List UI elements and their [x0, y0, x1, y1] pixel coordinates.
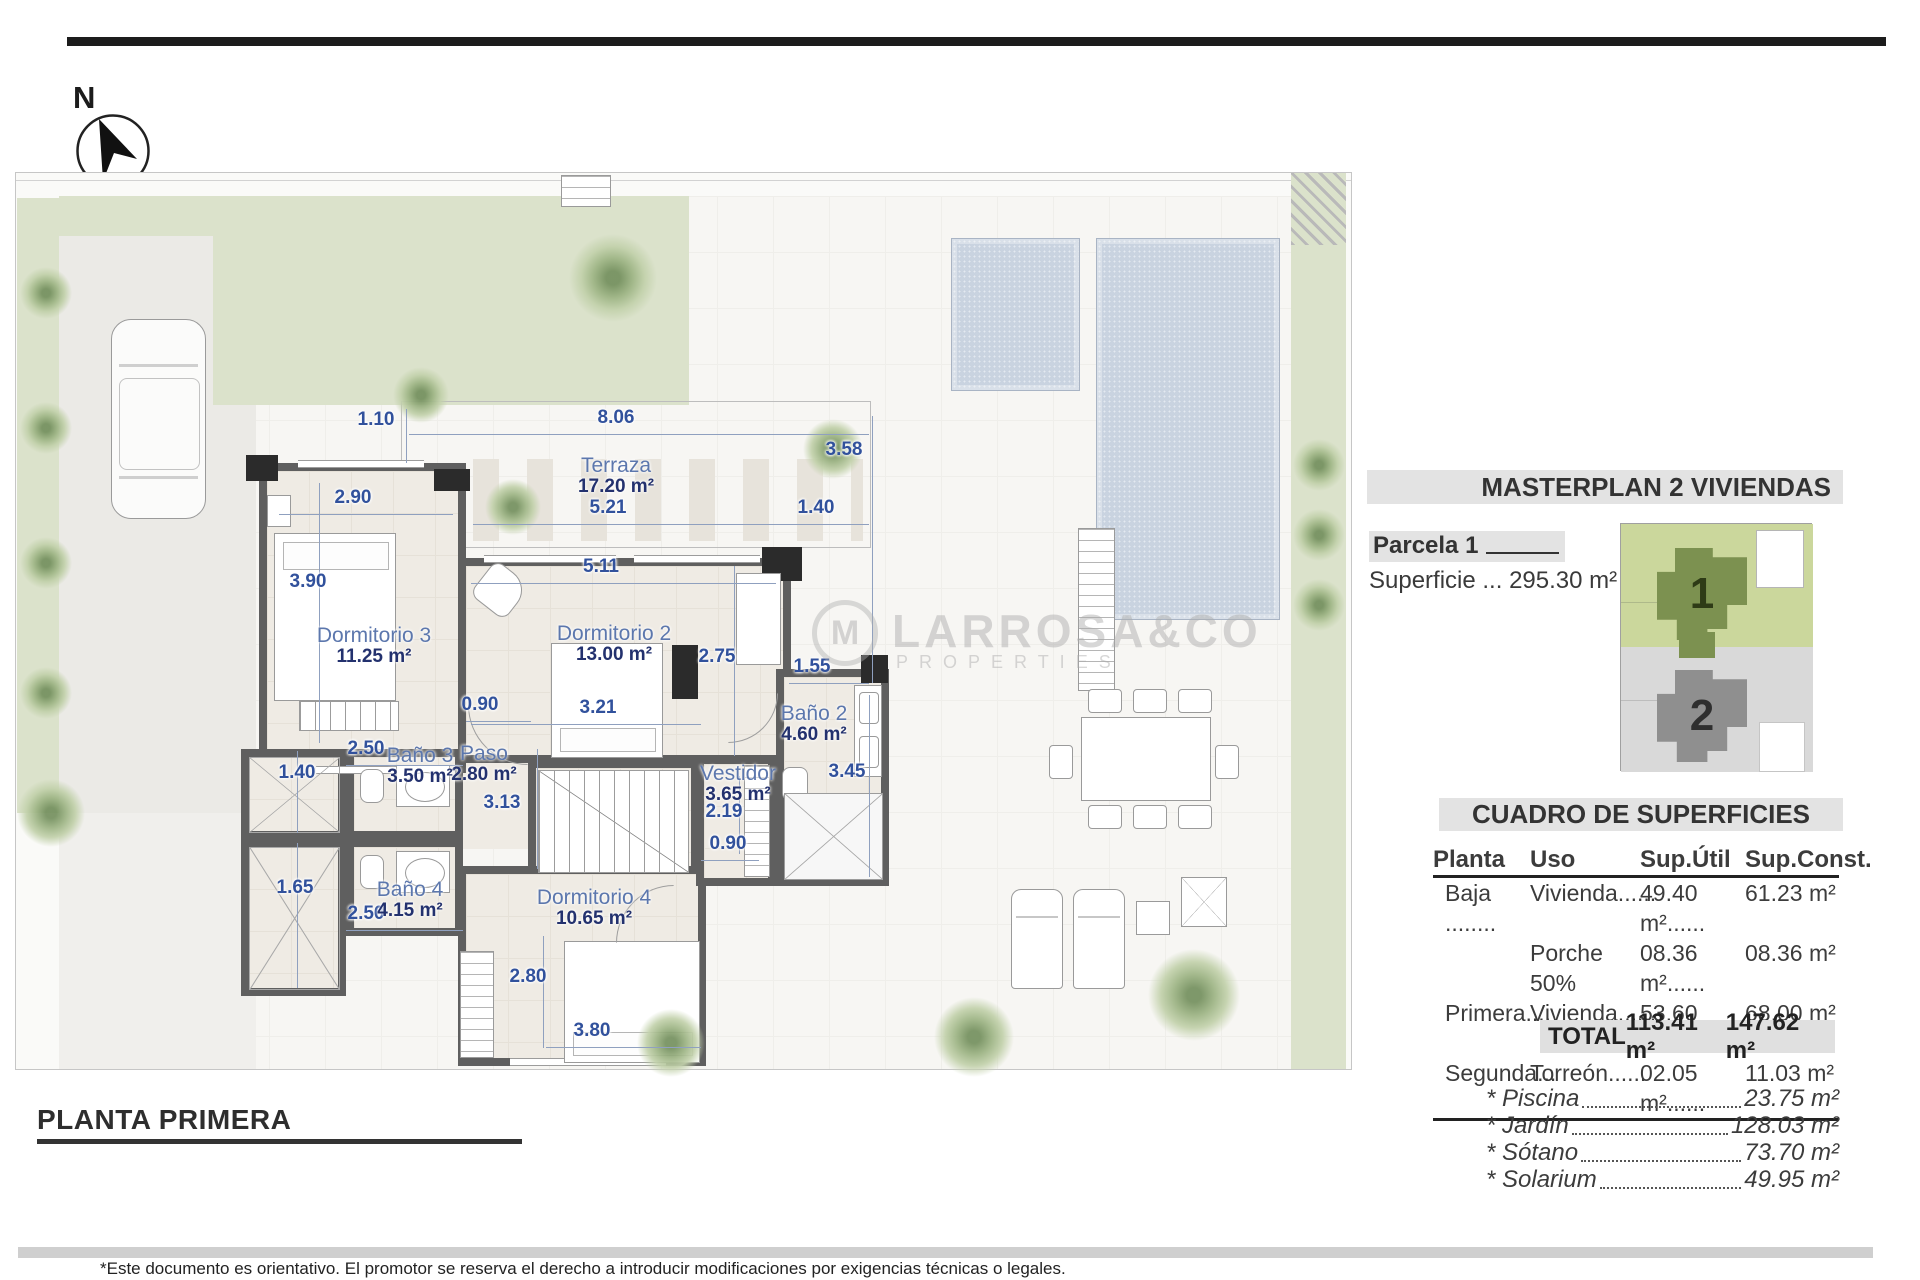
dimension-line	[297, 843, 298, 988]
dimension-line	[543, 936, 544, 1048]
extra-value: 23.75 m²	[1744, 1085, 1839, 1113]
table-header-cell: Planta	[1433, 845, 1530, 875]
window	[634, 555, 760, 563]
dimension-line	[537, 749, 538, 869]
watermark-sub: PROPERTIES	[896, 652, 1122, 673]
extras-list: * Piscina23.75 m²* Jardín128.03 m²* Sóta…	[1486, 1086, 1839, 1194]
pool-section-small	[951, 238, 1080, 391]
dimension-label: 1.40	[798, 497, 835, 519]
table-cell: Primera....	[1433, 998, 1530, 1058]
extra-row: * Solarium49.95 m²	[1486, 1167, 1839, 1194]
nightstand	[267, 495, 291, 527]
patio-lower-left	[59, 813, 256, 1069]
dimension-line	[409, 434, 869, 435]
dimension-label: 3.58	[826, 439, 863, 461]
car-roof	[119, 378, 200, 470]
table-cell: 61.23 m²	[1745, 878, 1839, 938]
table-header-row: PlantaUsoSup.ÚtilSup.Const.	[1433, 845, 1839, 875]
wall-corner	[434, 469, 470, 491]
north-label: N	[73, 80, 113, 114]
dotted-leader	[1581, 1160, 1741, 1162]
floorplan-page: N	[0, 0, 1920, 1280]
palm-tree	[17, 779, 85, 847]
table-header-cell: Uso	[1530, 845, 1640, 875]
room-name: Dormitorio 4	[537, 887, 651, 908]
watermark-logo-icon: M	[812, 600, 878, 666]
room-area: 13.00 m²	[557, 644, 671, 665]
dimension-label: 2.75	[699, 646, 736, 668]
dimension-line	[346, 930, 463, 931]
chair	[1133, 689, 1167, 713]
dimension-label: 5.21	[590, 497, 627, 519]
extra-label: * Piscina	[1486, 1085, 1579, 1113]
palm-tree	[485, 479, 541, 535]
watermark-name: LARROSA&CO	[892, 604, 1262, 658]
total-row: TOTAL 113.41 m² 147.62 m²	[1540, 1020, 1835, 1053]
dimension-line	[701, 860, 759, 861]
table-cell	[1433, 938, 1530, 998]
room-area: 3.65 m²	[700, 784, 776, 805]
table-row: Baja ........Vivienda......49.40 m².....…	[1433, 878, 1839, 938]
palm-tree	[1293, 509, 1345, 561]
table-body: Baja ........Vivienda......49.40 m².....…	[1433, 878, 1839, 1118]
chair	[1088, 689, 1122, 713]
car-rear-window	[119, 476, 198, 479]
room-name: Terraza	[578, 455, 654, 476]
wardrobe	[460, 951, 494, 1058]
extra-label: * Sótano	[1486, 1139, 1578, 1167]
palm-tree	[20, 537, 72, 589]
dimension-label: 3.13	[484, 792, 521, 814]
parcel-top-inner-line	[16, 180, 1351, 181]
palm-tree	[1148, 949, 1240, 1041]
pillow	[560, 728, 656, 752]
room-name: Vestidor	[700, 763, 776, 784]
planter	[1181, 877, 1227, 927]
toilet	[360, 769, 384, 803]
dimension-label: 2.90	[335, 487, 372, 509]
palm-tree	[20, 667, 72, 719]
extra-row: * Jardín128.03 m²	[1486, 1113, 1839, 1140]
palm-tree	[20, 402, 72, 454]
room-area: 17.20 m²	[578, 476, 654, 497]
room-name: Baño 4	[377, 879, 444, 900]
cuadro-title: CUADRO DE SUPERFICIES	[1439, 798, 1843, 831]
room-name: Baño 2	[781, 703, 848, 724]
dimension-label: 3.21	[580, 697, 617, 719]
car-windshield	[119, 364, 198, 367]
table-cell: 08.36 m²......	[1640, 938, 1745, 998]
room-area: 4.15 m²	[377, 900, 444, 921]
table-cell: Porche 50%	[1530, 938, 1640, 998]
lounge-chair	[1073, 889, 1125, 989]
dimension-line	[466, 721, 531, 722]
table-header-cell: Sup.Const.	[1745, 845, 1839, 875]
dimension-line	[788, 524, 869, 525]
dimension-line	[546, 1047, 701, 1048]
chair	[1178, 805, 1212, 829]
room-area: 10.65 m²	[537, 908, 651, 929]
dimension-label: 0.90	[710, 833, 747, 855]
dotted-leader	[1600, 1187, 1742, 1189]
room-name: Dormitorio 2	[557, 623, 671, 644]
room-label-paso: Paso2.80 m²	[451, 743, 516, 785]
extra-value: 73.70 m²	[1744, 1139, 1839, 1167]
room-area: 3.50 m²	[387, 766, 454, 787]
chair	[1215, 745, 1239, 779]
room-label-baño-4: Baño 44.15 m²	[377, 879, 444, 921]
masterplan-title: MASTERPLAN 2 VIVIENDAS	[1367, 470, 1843, 504]
dimension-line	[319, 483, 320, 743]
palm-tree	[20, 267, 72, 319]
dimension-line	[279, 514, 453, 515]
chair	[1133, 805, 1167, 829]
extra-value: 49.95 m²	[1744, 1166, 1839, 1194]
room-label-baño-3: Baño 33.50 m²	[387, 745, 454, 787]
palm-tree	[637, 1009, 705, 1077]
garden-strip-top	[59, 196, 213, 236]
desk	[736, 573, 781, 665]
dimension-line	[471, 724, 701, 725]
room-area: 11.25 m²	[317, 646, 431, 667]
dimension-label: 3.90	[290, 571, 327, 593]
minimap-notch-top	[1756, 530, 1804, 588]
dimension-label: 0.90	[462, 694, 499, 716]
table-row: Porche 50%08.36 m²......08.36 m²	[1433, 938, 1839, 998]
dimension-line	[789, 683, 869, 684]
table-cell: Baja ........	[1433, 878, 1530, 938]
footer-rule	[18, 1247, 1873, 1258]
total-label: TOTAL	[1548, 1023, 1626, 1051]
dotted-leader	[1572, 1133, 1728, 1135]
room-name: Baño 3	[387, 745, 454, 766]
room-label-terraza: Terraza17.20 m²	[578, 455, 654, 497]
dimension-line	[869, 695, 870, 877]
parcela-underline	[1486, 552, 1559, 554]
side-table	[1136, 901, 1170, 935]
superficie-line: Superficie ... 295.30 m²	[1369, 567, 1649, 597]
dimension-label: 3.80	[574, 1020, 611, 1042]
table-cell: 49.40 m²......	[1640, 878, 1745, 938]
dimension-label: 1.10	[358, 409, 395, 431]
disclaimer-text: *Este documento es orientativo. El promo…	[100, 1259, 1066, 1279]
extra-label: * Jardín	[1486, 1112, 1569, 1140]
room-area: 2.80 m²	[451, 764, 516, 785]
room-label-dormitorio-2: Dormitorio 213.00 m²	[557, 623, 671, 665]
palm-tree	[934, 997, 1014, 1077]
dining-table	[1081, 717, 1211, 801]
chair	[1178, 689, 1212, 713]
chair	[1088, 805, 1122, 829]
extra-label: * Solarium	[1486, 1166, 1597, 1194]
masterplan-minimap: 1 2	[1620, 523, 1812, 771]
minimap-line	[1621, 602, 1661, 603]
room-label-dormitorio-4: Dormitorio 410.65 m²	[537, 887, 651, 929]
dimension-label: 3.45	[829, 761, 866, 783]
wall-corner	[672, 645, 698, 699]
dotted-leader	[1582, 1106, 1741, 1108]
superficies-table: PlantaUsoSup.ÚtilSup.Const. Baja .......…	[1433, 845, 1839, 1121]
car	[111, 319, 206, 519]
hatched-corner	[1291, 173, 1346, 245]
palm-tree	[1293, 579, 1345, 631]
dimension-label: 8.06	[598, 407, 635, 429]
room-label-baño-2: Baño 24.60 m²	[781, 703, 848, 745]
extra-row: * Piscina23.75 m²	[1486, 1086, 1839, 1113]
table-cell: Vivienda......	[1530, 878, 1640, 938]
chair	[1049, 745, 1073, 779]
dimension-label: 1.40	[279, 762, 316, 784]
lounge-line	[1016, 916, 1058, 918]
dimension-label: 2.80	[510, 966, 547, 988]
lounge-line	[1078, 916, 1120, 918]
parcela-label: Parcela 1	[1373, 532, 1478, 560]
pool-section-large	[1096, 238, 1280, 620]
table-cell: 08.36 m²	[1745, 938, 1839, 998]
dimension-line	[471, 583, 776, 584]
radiator	[299, 701, 399, 731]
pillow	[283, 542, 389, 570]
entry-steps	[561, 175, 611, 207]
bed	[274, 533, 396, 701]
room-name: Paso	[451, 743, 516, 764]
total-util: 113.41 m²	[1626, 1009, 1726, 1065]
dimension-label: 5.11	[583, 556, 619, 578]
room-name: Dormitorio 3	[317, 625, 431, 646]
dimension-line	[406, 409, 407, 463]
room-area: 4.60 m²	[781, 724, 848, 745]
room-label-vestidor: Vestidor3.65 m²	[700, 763, 776, 805]
extra-value: 128.03 m²	[1731, 1112, 1839, 1140]
parcela-row: Parcela 1	[1369, 531, 1565, 562]
palm-tree	[569, 234, 657, 322]
palm-tree	[393, 367, 449, 423]
top-rule	[67, 37, 1886, 46]
plan-title-rule	[37, 1139, 522, 1144]
dimension-label: 1.65	[277, 877, 314, 899]
extra-row: * Sótano73.70 m²	[1486, 1140, 1839, 1167]
dimension-line	[473, 524, 788, 525]
room-label-dormitorio-3: Dormitorio 311.25 m²	[317, 625, 431, 667]
palm-tree	[1293, 439, 1345, 491]
wardrobe-x	[249, 847, 340, 990]
plan-title: PLANTA PRIMERA	[37, 1104, 291, 1136]
wall-corner	[246, 455, 278, 481]
table-header-cell: Sup.Útil	[1640, 845, 1745, 875]
total-const: 147.62 m²	[1726, 1009, 1827, 1065]
lounge-chair	[1011, 889, 1063, 989]
minimap-notch-bottom	[1759, 722, 1805, 772]
dimension-label: 2.50	[348, 738, 385, 760]
stairs	[538, 770, 689, 873]
